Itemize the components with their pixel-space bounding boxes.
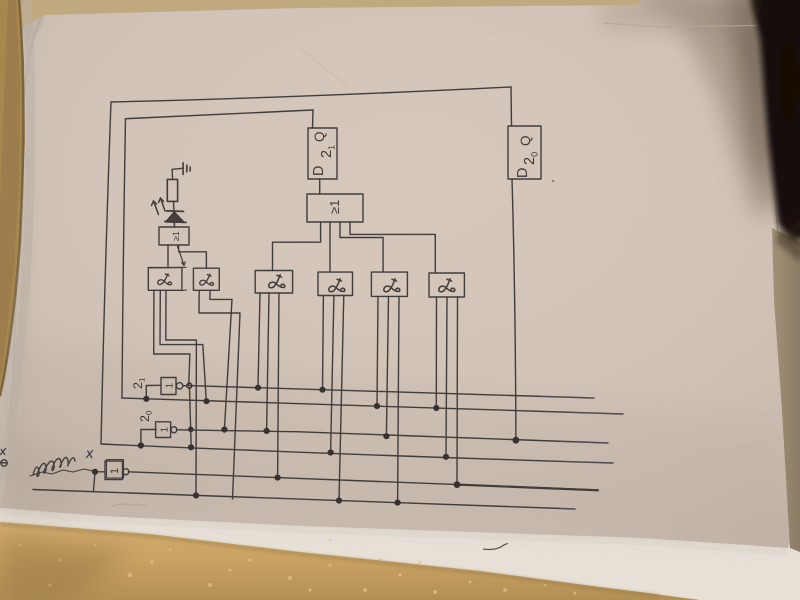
svg-text:1: 1	[165, 383, 176, 389]
svg-text:1: 1	[160, 427, 171, 433]
svg-text:≥1: ≥1	[327, 200, 342, 214]
svg-text:≥1: ≥1	[171, 231, 181, 241]
svg-text:D: D	[311, 166, 327, 176]
svg-text:D: D	[515, 168, 531, 178]
svg-text:Q: Q	[312, 131, 327, 142]
svg-text:Q: Q	[518, 135, 533, 146]
svg-text:1: 1	[109, 468, 121, 474]
